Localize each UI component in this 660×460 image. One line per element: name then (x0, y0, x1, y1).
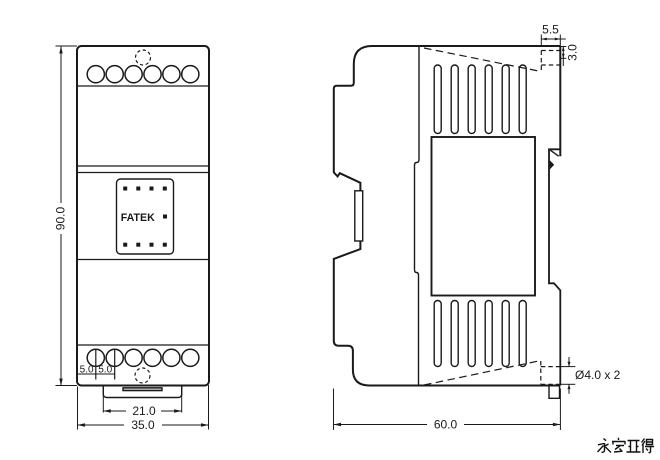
svg-text:35.0: 35.0 (131, 418, 155, 432)
svg-text:FATEK: FATEK (121, 212, 155, 224)
svg-text:5.5: 5.5 (542, 23, 559, 37)
svg-text:5.0: 5.0 (98, 365, 112, 376)
svg-text:Ø4.0 x 2: Ø4.0 x 2 (575, 368, 621, 382)
svg-text:21.0: 21.0 (132, 404, 156, 418)
svg-text:90.0: 90.0 (54, 206, 68, 230)
svg-text:60.0: 60.0 (434, 418, 458, 432)
svg-text:5.0: 5.0 (80, 365, 94, 376)
svg-text:3.0: 3.0 (566, 44, 580, 61)
